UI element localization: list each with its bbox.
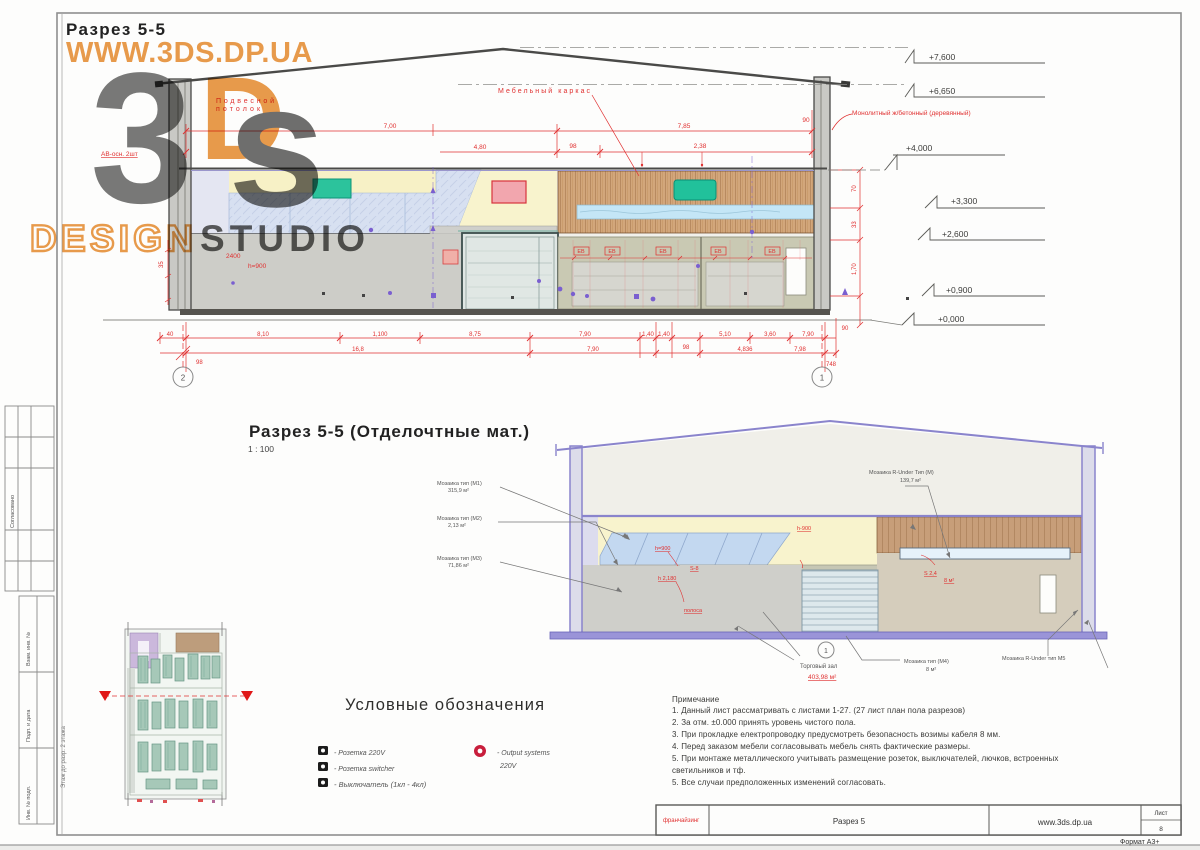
svg-text:S-8: S-8	[690, 566, 699, 572]
svg-text:Торговый зал: Торговый зал	[800, 663, 838, 670]
svg-text:+6,650: +6,650	[929, 86, 956, 96]
svg-text:франчайзинг: франчайзинг	[663, 817, 700, 824]
svg-text:Мозаика R-Under тип М5: Мозаика R-Under тип М5	[1002, 656, 1065, 662]
svg-text:403,98 м²: 403,98 м²	[808, 674, 837, 681]
svg-text:+7,600: +7,600	[929, 52, 956, 62]
svg-text:8,10: 8,10	[257, 332, 269, 338]
svg-text:2. За отм. ±0.000 принять уров: 2. За отм. ±0.000 принять уровень чистог…	[672, 718, 856, 727]
svg-text:- Выключатель (1кл - 4кл): - Выключатель (1кл - 4кл)	[334, 780, 427, 789]
svg-text:3: 3	[90, 35, 193, 242]
svg-text:ЕВ: ЕВ	[659, 249, 667, 255]
svg-text:1 : 100: 1 : 100	[248, 444, 274, 454]
svg-text:Формат А3+: Формат А3+	[1120, 839, 1159, 846]
svg-text:71,86 м²: 71,86 м²	[448, 563, 469, 569]
svg-text:90: 90	[842, 326, 849, 332]
svg-text:Мозаика тип (М3): Мозаика тип (М3)	[437, 556, 482, 562]
svg-text:ЕВ: ЕВ	[714, 249, 722, 255]
svg-text:2,13 м²: 2,13 м²	[448, 523, 466, 529]
svg-text:ЕВ: ЕВ	[577, 249, 585, 255]
svg-text:7,00: 7,00	[384, 123, 397, 130]
svg-text:Мозаика тип (М1): Мозаика тип (М1)	[437, 481, 482, 487]
svg-text:8 м²: 8 м²	[926, 667, 936, 673]
svg-text:1,40: 1,40	[642, 332, 654, 338]
svg-text:5. Все случаи предположенных и: 5. Все случаи предположенных изменений с…	[672, 778, 886, 787]
svg-text:Разрез 5: Разрез 5	[833, 817, 866, 826]
svg-text:16,8: 16,8	[352, 347, 364, 353]
svg-text:1: 1	[824, 648, 828, 655]
svg-text:полоса: полоса	[684, 608, 703, 614]
svg-text:1,70: 1,70	[852, 263, 858, 275]
svg-text:- Розетка 220V: - Розетка 220V	[334, 750, 386, 757]
svg-text:S 2,4: S 2,4	[924, 571, 937, 577]
svg-text:1,100: 1,100	[372, 332, 388, 338]
svg-text:7,98: 7,98	[794, 347, 806, 353]
svg-text:www.3ds.dp.ua: www.3ds.dp.ua	[1037, 818, 1093, 827]
svg-text:8 м²: 8 м²	[944, 578, 954, 584]
svg-text:h-900: h-900	[797, 526, 811, 532]
svg-text:70: 70	[852, 185, 858, 192]
svg-text:4,80: 4,80	[474, 144, 487, 151]
svg-text:s: s	[228, 49, 325, 244]
svg-text:1. Данный лист рассматривать с: 1. Данный лист рассматривать с листами 1…	[672, 706, 965, 715]
svg-text:ЕВ: ЕВ	[768, 249, 776, 255]
svg-text:Инв. № подл.: Инв. № подл.	[26, 785, 32, 820]
svg-text:7,90: 7,90	[579, 332, 591, 338]
svg-text:5. При монтаже металлического: 5. При монтаже металлического учитывать …	[672, 754, 1058, 763]
svg-text:35: 35	[159, 261, 165, 268]
svg-text:3,60: 3,60	[764, 332, 776, 338]
svg-text:Мозаика R-Under Тип (М): Мозаика R-Under Тип (М)	[869, 470, 934, 476]
svg-text:- Розетка switcher: - Розетка switcher	[334, 766, 395, 773]
svg-text:1,40: 1,40	[658, 332, 670, 338]
svg-text:748: 748	[826, 362, 837, 368]
svg-text:+0,000: +0,000	[938, 314, 965, 324]
svg-text:4. Перед заказом мебели согла: 4. Перед заказом мебели согласовывать ме…	[672, 742, 970, 751]
svg-text:Примечание: Примечание	[672, 695, 720, 704]
svg-text:5,10: 5,10	[719, 332, 731, 338]
svg-text:7,90: 7,90	[587, 347, 599, 353]
svg-text:33: 33	[852, 221, 858, 228]
svg-text:98: 98	[196, 360, 203, 366]
svg-text:Этаж до разр. 2 этажа: Этаж до разр. 2 этажа	[61, 725, 67, 788]
svg-text:DESIGN: DESIGN	[30, 218, 193, 259]
svg-text:h=900: h=900	[655, 546, 670, 552]
svg-text:+2,600: +2,600	[942, 229, 969, 239]
svg-text:светильников и тф.: светильников и тф.	[672, 766, 746, 775]
svg-text:+3,300: +3,300	[951, 196, 978, 206]
svg-text:Мозаика тип (М2): Мозаика тип (М2)	[437, 516, 482, 522]
svg-text:Подп. и дата: Подп. и дата	[26, 709, 32, 742]
svg-text:+4,000: +4,000	[906, 143, 933, 153]
svg-text:Согласовано: Согласовано	[10, 495, 16, 528]
svg-text:40: 40	[167, 332, 174, 338]
svg-text:8,75: 8,75	[469, 332, 481, 338]
svg-text:Монолитный ж/бетонный (деревян: Монолитный ж/бетонный (деревянный)	[852, 109, 971, 117]
svg-text:Мебельный каркас: Мебельный каркас	[498, 87, 591, 95]
svg-text:- Output systems: - Output systems	[497, 750, 550, 757]
svg-text:4,836: 4,836	[737, 347, 753, 353]
svg-text:98: 98	[683, 345, 690, 351]
svg-text:3. При прокладке електропровод: 3. При прокладке електропроводку предусм…	[672, 730, 1000, 739]
svg-text:h 2,180: h 2,180	[658, 576, 676, 582]
svg-text:Мозаика тип (М4): Мозаика тип (М4)	[904, 659, 949, 665]
svg-text:Условные обозначения: Условные обозначения	[345, 696, 544, 714]
svg-text:139,7 м²: 139,7 м²	[900, 478, 921, 484]
svg-text:ЕВ: ЕВ	[608, 249, 616, 255]
svg-text:h=900: h=900	[248, 263, 267, 270]
svg-text:Лист: Лист	[1154, 811, 1167, 817]
svg-text:2: 2	[181, 374, 186, 383]
svg-text:Взам. инв. №: Взам. инв. №	[26, 632, 32, 666]
svg-text:+0,900: +0,900	[946, 285, 973, 295]
svg-text:8: 8	[1159, 826, 1163, 833]
svg-text:90: 90	[802, 117, 810, 124]
svg-text:2,38: 2,38	[694, 143, 707, 150]
svg-text:Разрез 5-5 (Отделочтные мат.): Разрез 5-5 (Отделочтные мат.)	[249, 422, 529, 441]
svg-text:7,85: 7,85	[678, 123, 691, 130]
svg-text:1: 1	[820, 374, 825, 383]
svg-text:220V: 220V	[499, 763, 518, 770]
svg-text:98: 98	[569, 143, 577, 150]
svg-text:7,90: 7,90	[802, 332, 814, 338]
svg-text:315,9 м²: 315,9 м²	[448, 488, 469, 494]
